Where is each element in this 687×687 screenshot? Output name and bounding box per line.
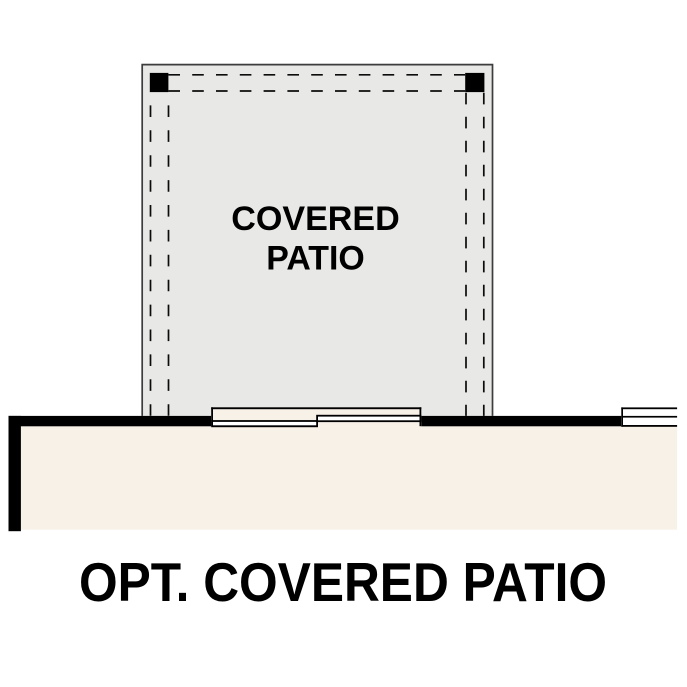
- svg-text:PATIO: PATIO: [266, 239, 365, 277]
- svg-text:COVERED: COVERED: [231, 200, 400, 238]
- svg-text:OPT. COVERED PATIO: OPT. COVERED PATIO: [79, 551, 607, 613]
